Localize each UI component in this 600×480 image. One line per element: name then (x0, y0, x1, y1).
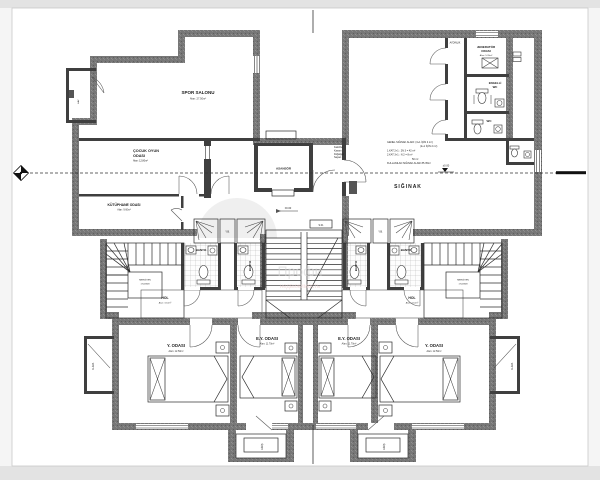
label-bathroom-3: BANYO (354, 260, 358, 271)
label-hall-left-area: Alan: 3.10m² (159, 302, 172, 305)
label-gym-area: Alan: 27.50m² (190, 97, 206, 101)
label-shelter: SIĞINAK (394, 182, 422, 190)
label-bedroom-left: Y. ODASI (167, 343, 185, 348)
section-line-end (556, 171, 586, 174)
label-bathroom-2: BANYO (248, 260, 252, 271)
shelter-calc-line: (2+1 İÇİN 2 m²) (420, 145, 437, 148)
label-winding-right-2: 17x18/28 (458, 284, 468, 286)
label-ac-left: KLİMA (92, 362, 95, 370)
label-playroom-1: ÇOCUK OYUN (133, 149, 159, 153)
watermark-word-2: недвижимость (280, 284, 320, 290)
label-library-area: Alan: 9.60m² (117, 209, 131, 212)
washing-machine (208, 246, 217, 255)
label-bathroom-4: BANYO (401, 248, 412, 252)
label-winding-right-1: MERDİVEN (457, 279, 469, 282)
label-playroom-2: ODASI (133, 154, 145, 158)
top-band (0, 0, 600, 8)
boiler-unit (349, 181, 357, 194)
label-library: KÜTÜPHANE ODASI (108, 202, 141, 207)
label-playroom-area: Alan: 12.80m² (133, 160, 148, 163)
label-hall-right: HOL (408, 296, 415, 300)
label-master-right: E.Y. ODASI (338, 336, 360, 341)
vent-grille (513, 52, 521, 56)
watermark-text: Профи недвижимость (278, 263, 323, 290)
label-wc: WC (487, 119, 493, 123)
shelter-calc-line: 2.KAT 3+1 : N 2 = 8 m² (387, 154, 413, 157)
label-winding-left-2: 17x18/28 (140, 284, 150, 286)
shelter-calc-line: 50 m² (412, 158, 419, 161)
label-entry-left: GİRİŞ (261, 443, 264, 450)
watermark-word-1: Профи (278, 263, 323, 279)
toilet-bowl (199, 266, 208, 279)
label-entry-right: GİRİŞ (383, 443, 386, 450)
label-duct-left: Y.B. (225, 230, 230, 234)
level-marker-shelter: ±0.00 (443, 164, 450, 168)
toilet-tank (197, 280, 210, 284)
label-generator-2: ODASI (481, 49, 491, 53)
label-bedroom-right: Y. ODASI (425, 343, 443, 348)
shelter-calc-line: 1.KAT 2+1 : 2N 3 = 42 m² (387, 149, 415, 152)
label-bedroom-right-area: Alan: 12.50m² (427, 350, 442, 353)
label-winding-left-1: MERDİVEN (139, 279, 151, 282)
label-master-left-area: Alan: 11.70m² (260, 343, 275, 346)
label-gym: SPOR SALONU (181, 90, 214, 95)
label-duct-right: Y.B. (378, 230, 383, 234)
label-lightwell: AYDINLIK (450, 42, 461, 45)
label-hall-left: HOL (161, 296, 168, 300)
bottom-band (0, 466, 600, 480)
boiler-note-line: Sayacı (334, 156, 342, 159)
floor-plan-canvas: Профи недвижимость ±0.00 ±0.00 SPOR SALO… (0, 0, 600, 480)
label-shaft: HAV. (77, 99, 80, 104)
label-bedroom-left-area: Alan: 12.50m² (169, 350, 184, 353)
label-hall-right-area: Alan: 3.10m² (406, 302, 419, 305)
label-stair-box: S.01 (319, 224, 325, 227)
level-marker-lobby: ±0.00 (285, 206, 292, 210)
label-bathroom-1: BANYO (196, 248, 207, 252)
label-master-right-area: Alan: 11.70m² (342, 343, 357, 346)
vent-grille (513, 58, 521, 62)
label-generator-area: Alan: 5.20m² (480, 54, 493, 57)
label-master-left: E.Y. ODASI (256, 336, 278, 341)
shelter-calc-line: KULLANILAN SIĞINAK ALANI 85.35m² (387, 162, 431, 165)
shelter-calc-line: GENEL SIĞINAK ALANI: (3+1 İÇİN 4 m²) (387, 141, 433, 144)
floor-plan-page: Профи недвижимость ±0.00 ±0.00 SPOR SALO… (0, 0, 600, 480)
label-ac-right: KLİMA (511, 362, 514, 370)
label-elevator: ASANSÖR (276, 166, 292, 171)
